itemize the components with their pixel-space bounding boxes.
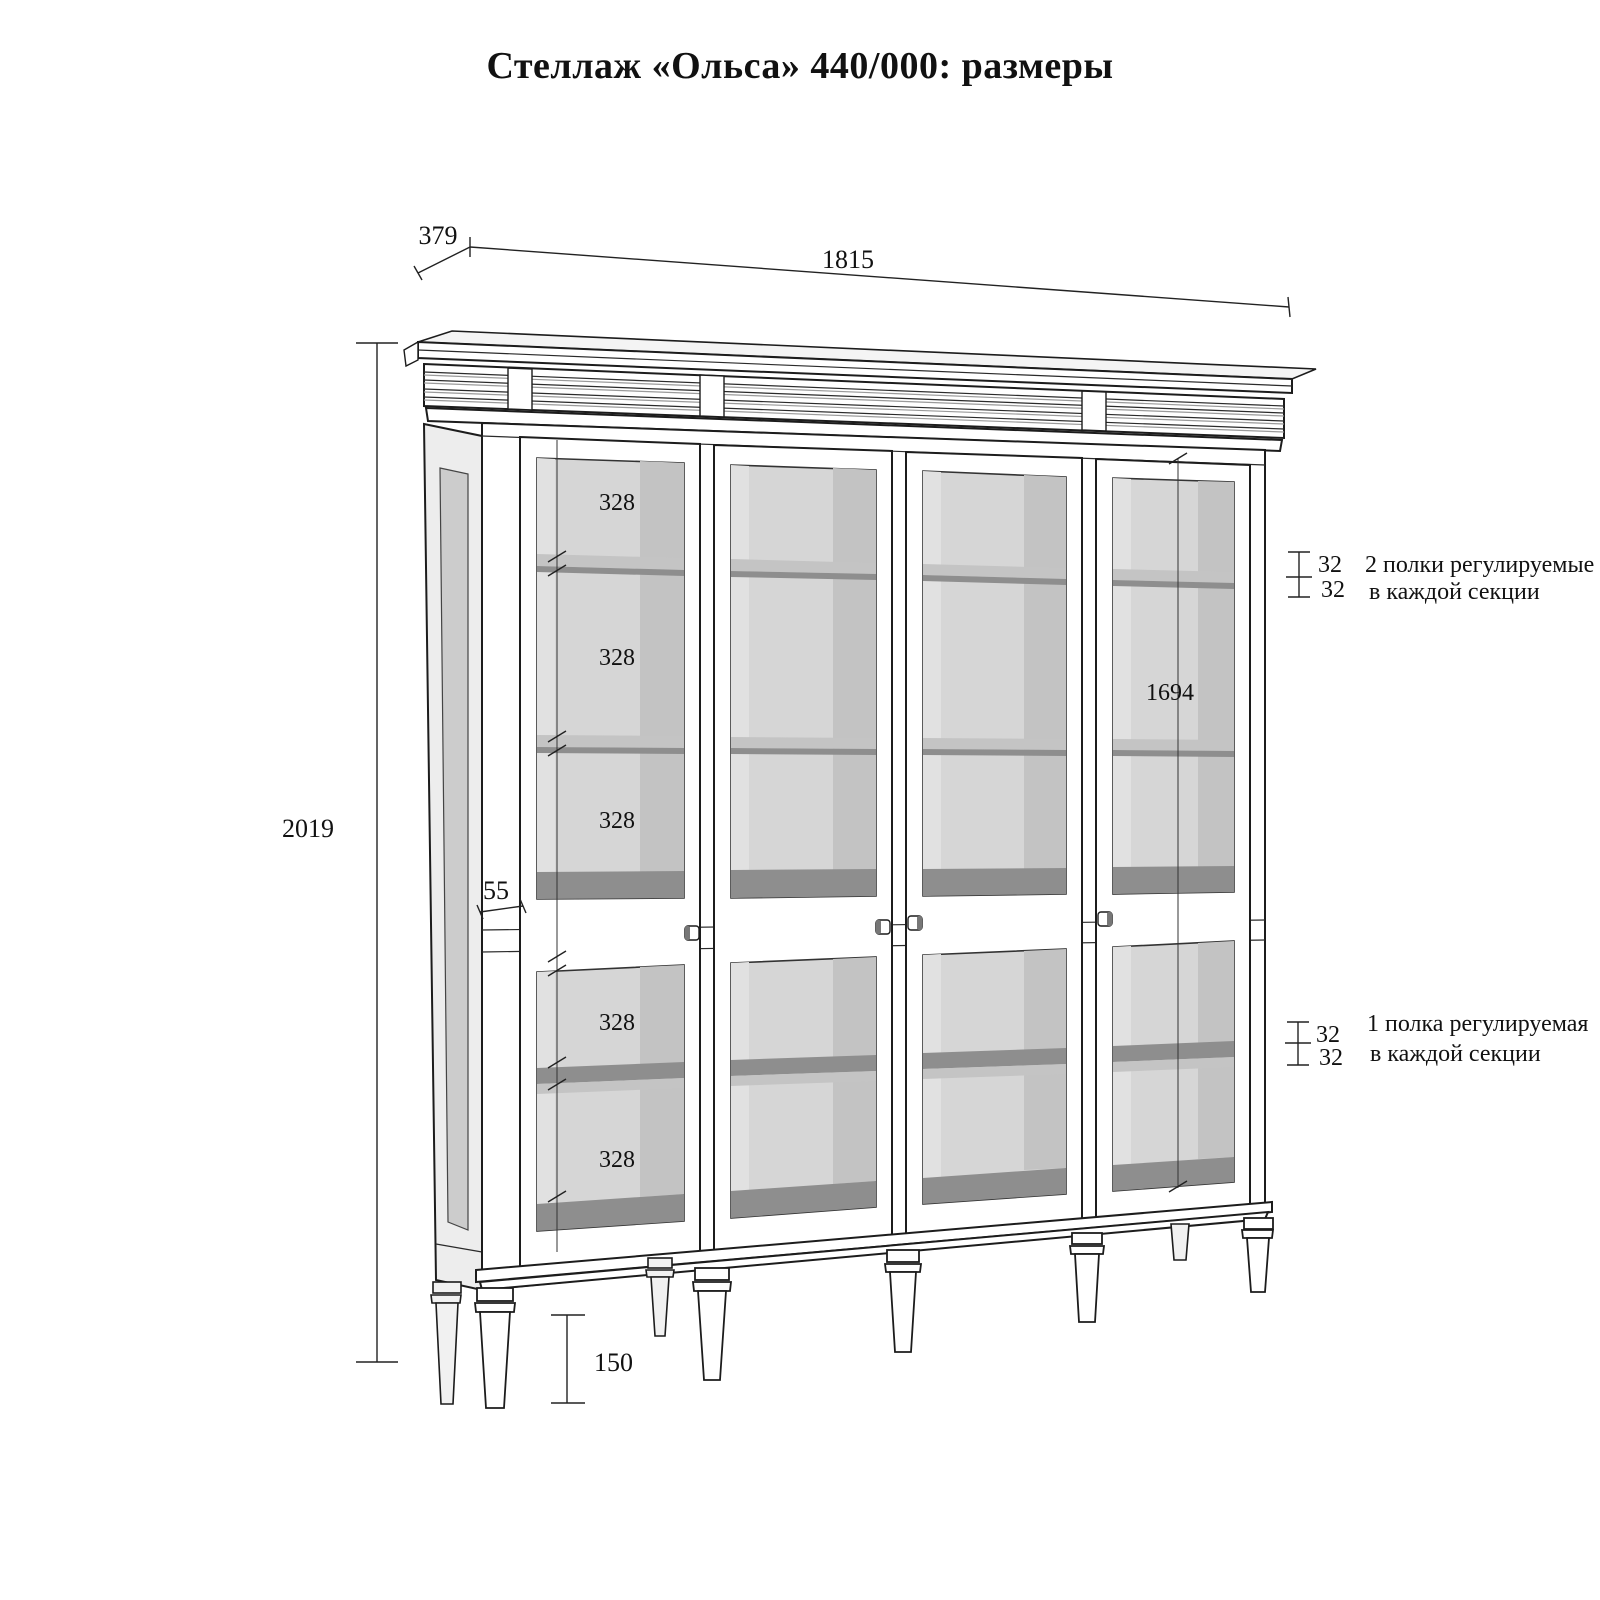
front-leg-3 [885, 1250, 921, 1352]
door-2 [714, 445, 892, 1252]
note-upper-line2: в каждой секции [1369, 579, 1540, 605]
technical-drawing: 379 1815 2019 55 150 [0, 0, 1600, 1600]
door-3 [906, 452, 1082, 1235]
inc-lower-label-2: 32 [1319, 1045, 1343, 1071]
rear-leg-right [1171, 1224, 1189, 1260]
shelf-gap-label-4: 328 [599, 1010, 635, 1036]
rear-leg-mid [646, 1258, 674, 1336]
dim-height-label: 2019 [282, 814, 334, 843]
inc-upper-label-1: 32 [1318, 552, 1342, 578]
dim-depth: 379 [414, 221, 470, 280]
inc-upper-label-2: 32 [1321, 577, 1345, 603]
dim-increment-upper: 32 32 2 полки регулируемые в каждой секц… [1286, 552, 1594, 605]
dim-leg-height-label: 150 [594, 1348, 633, 1377]
front-leg-2 [693, 1268, 731, 1380]
dim-height: 2019 [282, 343, 398, 1362]
dim-width-label: 1815 [822, 245, 874, 274]
note-upper-line1: 2 полки регулируемые [1365, 552, 1594, 578]
rear-leg-left [431, 1282, 461, 1404]
dim-interior-height-label: 1694 [1146, 680, 1194, 706]
note-lower-line2: в каждой секции [1370, 1041, 1541, 1067]
front-leg-5 [1242, 1218, 1273, 1292]
cabinet-side-panel [424, 424, 482, 1290]
front-leg-1 [475, 1288, 515, 1408]
note-lower-line1: 1 полка регулируемая [1367, 1011, 1588, 1037]
shelf-gap-label-2: 328 [599, 645, 635, 671]
dim-depth-label: 379 [419, 221, 458, 250]
dim-increment-lower: 32 32 1 полка регулируемая в каждой секц… [1285, 1011, 1588, 1071]
drawing-page: Стеллаж «Ольса» 440/000: размеры [0, 0, 1600, 1600]
dim-width: 1815 [470, 245, 1290, 317]
shelf-gap-label-1: 328 [599, 490, 635, 516]
front-leg-4 [1070, 1233, 1104, 1322]
shelf-gap-label-3: 328 [599, 808, 635, 834]
door-1 [520, 437, 700, 1269]
dim-leg-height: 150 [551, 1315, 633, 1403]
shelf-gap-label-5: 328 [599, 1147, 635, 1173]
dim-rail-label: 55 [483, 876, 509, 905]
door-4 [1096, 459, 1250, 1219]
